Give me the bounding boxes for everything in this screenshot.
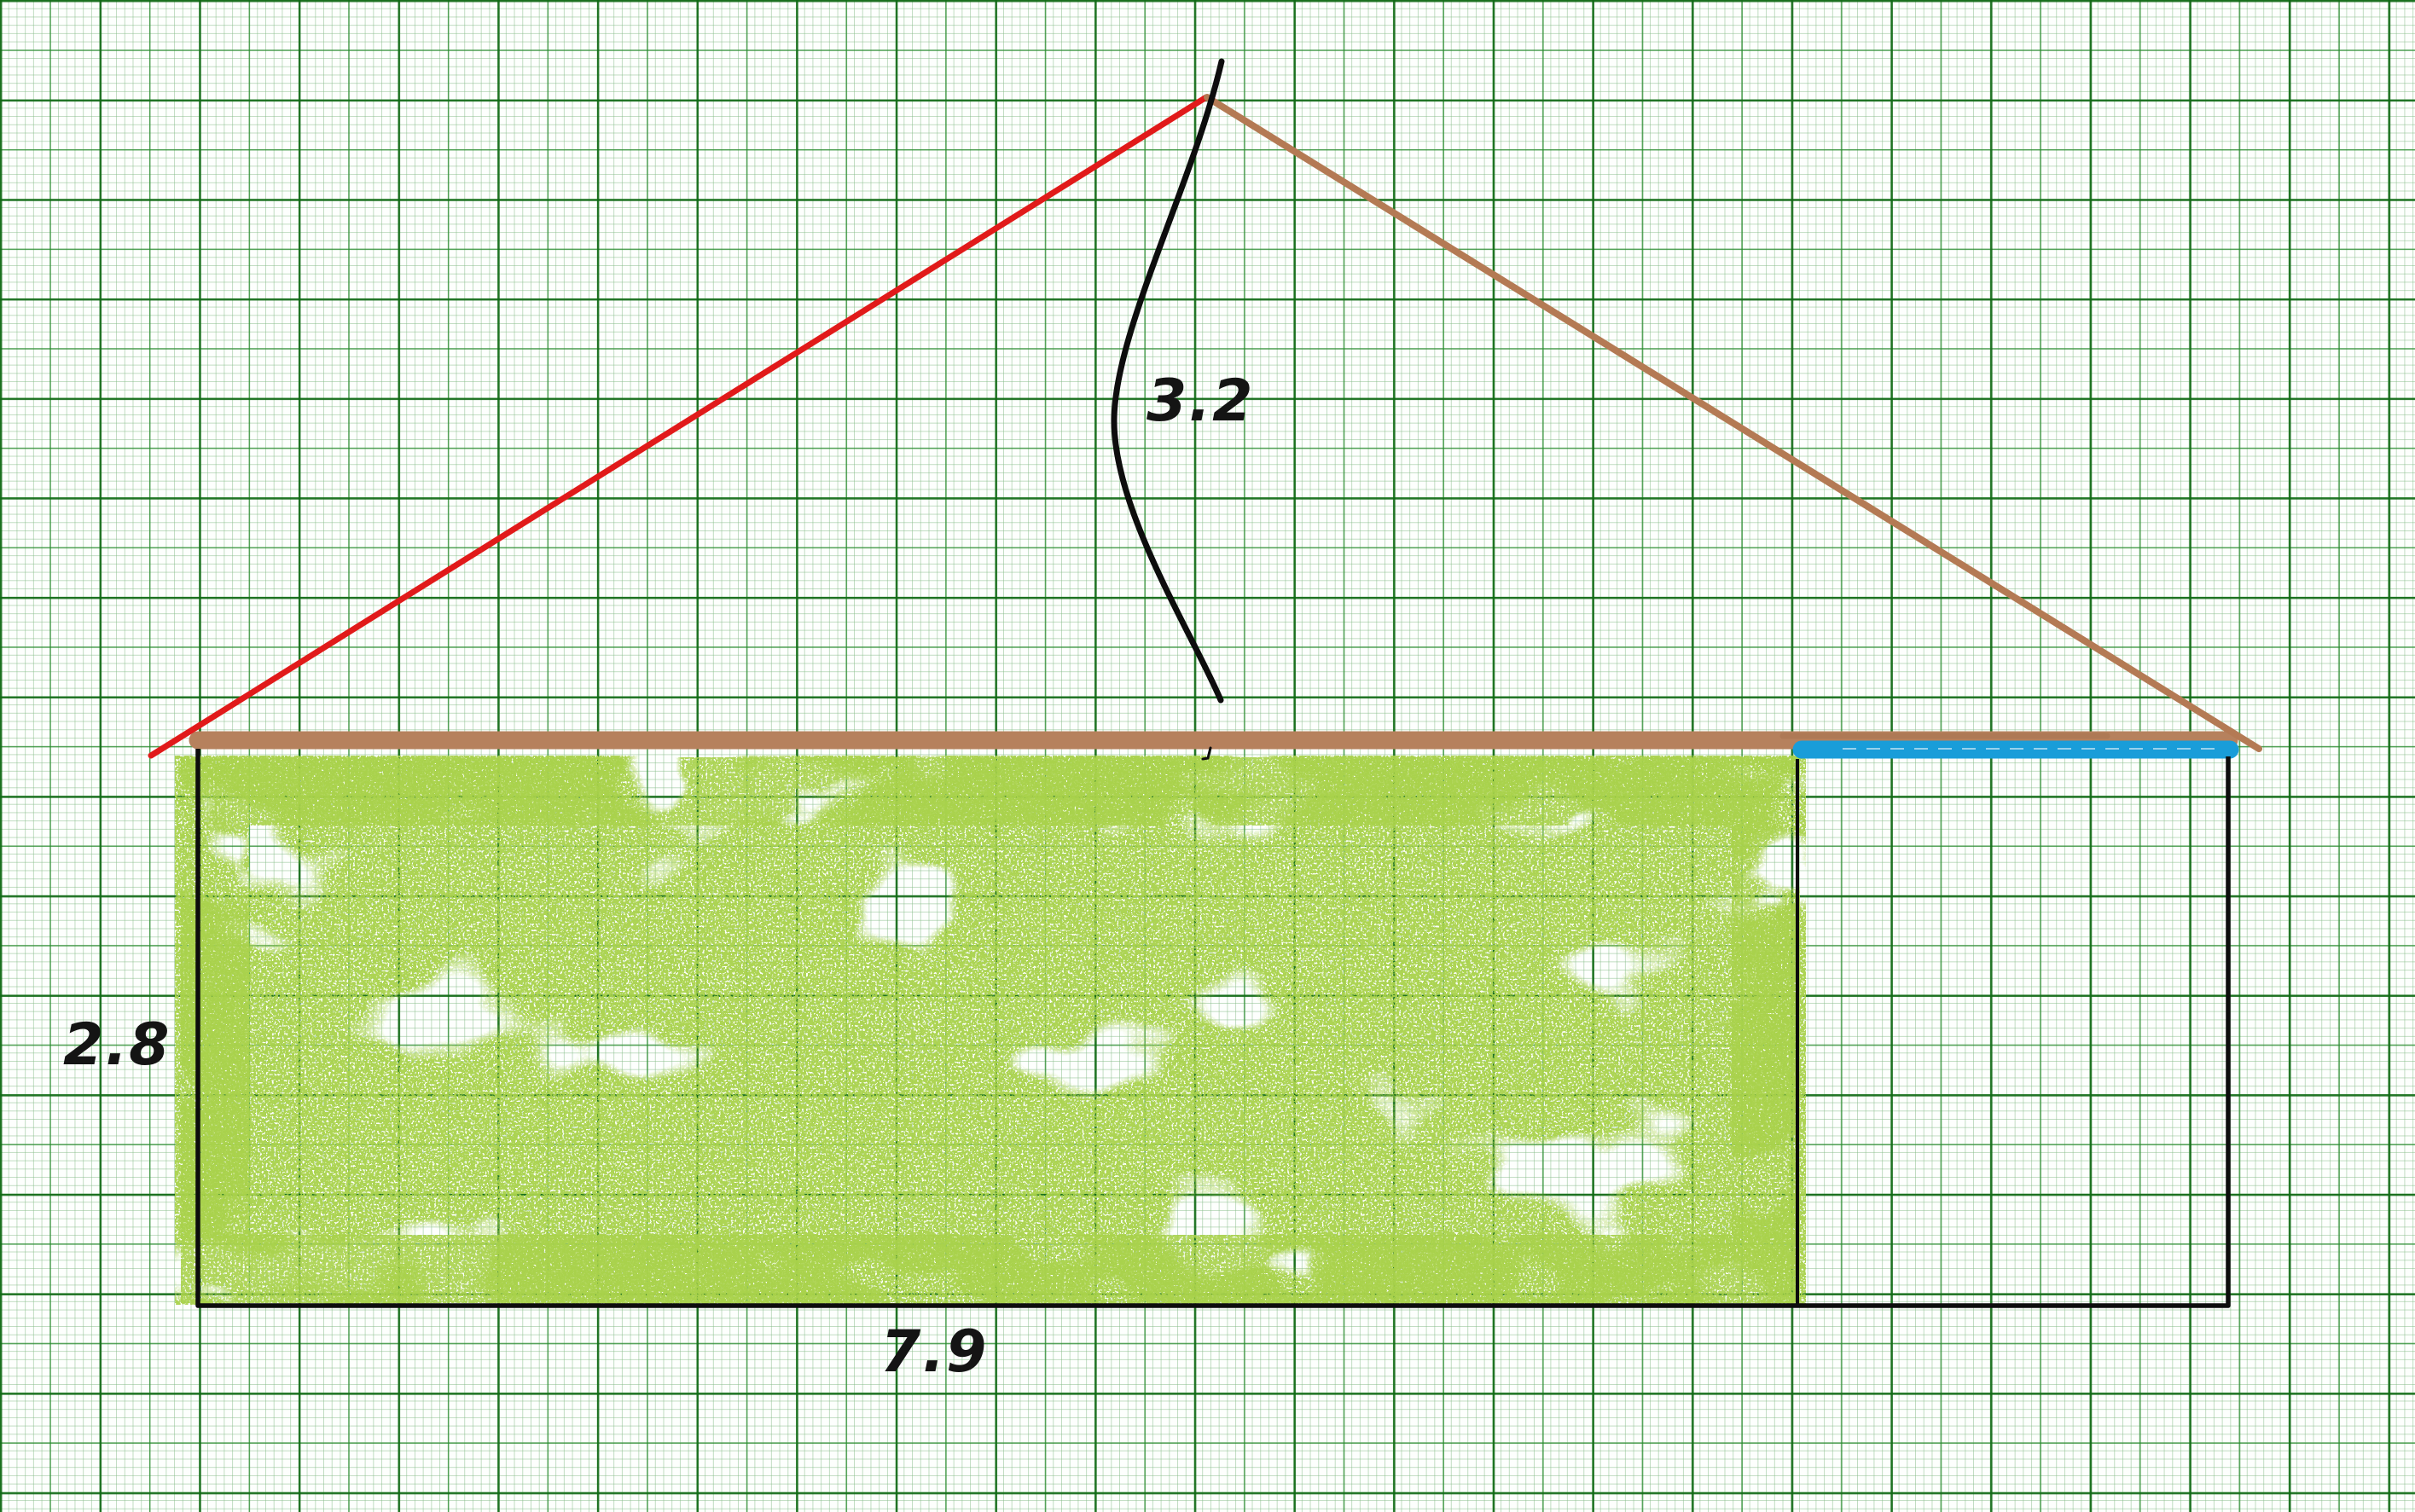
spray-area [175, 756, 1806, 1305]
wall-height-label: 2.8 [63, 1017, 171, 1075]
sketch-drawing [0, 0, 2415, 1512]
graph-paper-canvas: 3.2 2.8 7.9 [0, 0, 2415, 1512]
grass-scribble-fill [175, 756, 1806, 1305]
roof-left-slope-line [151, 97, 1206, 756]
roof-height-label: 3.2 [1147, 373, 1254, 431]
width-label: 7.9 [880, 1324, 988, 1382]
roof-right-slope-line [1207, 97, 2259, 749]
